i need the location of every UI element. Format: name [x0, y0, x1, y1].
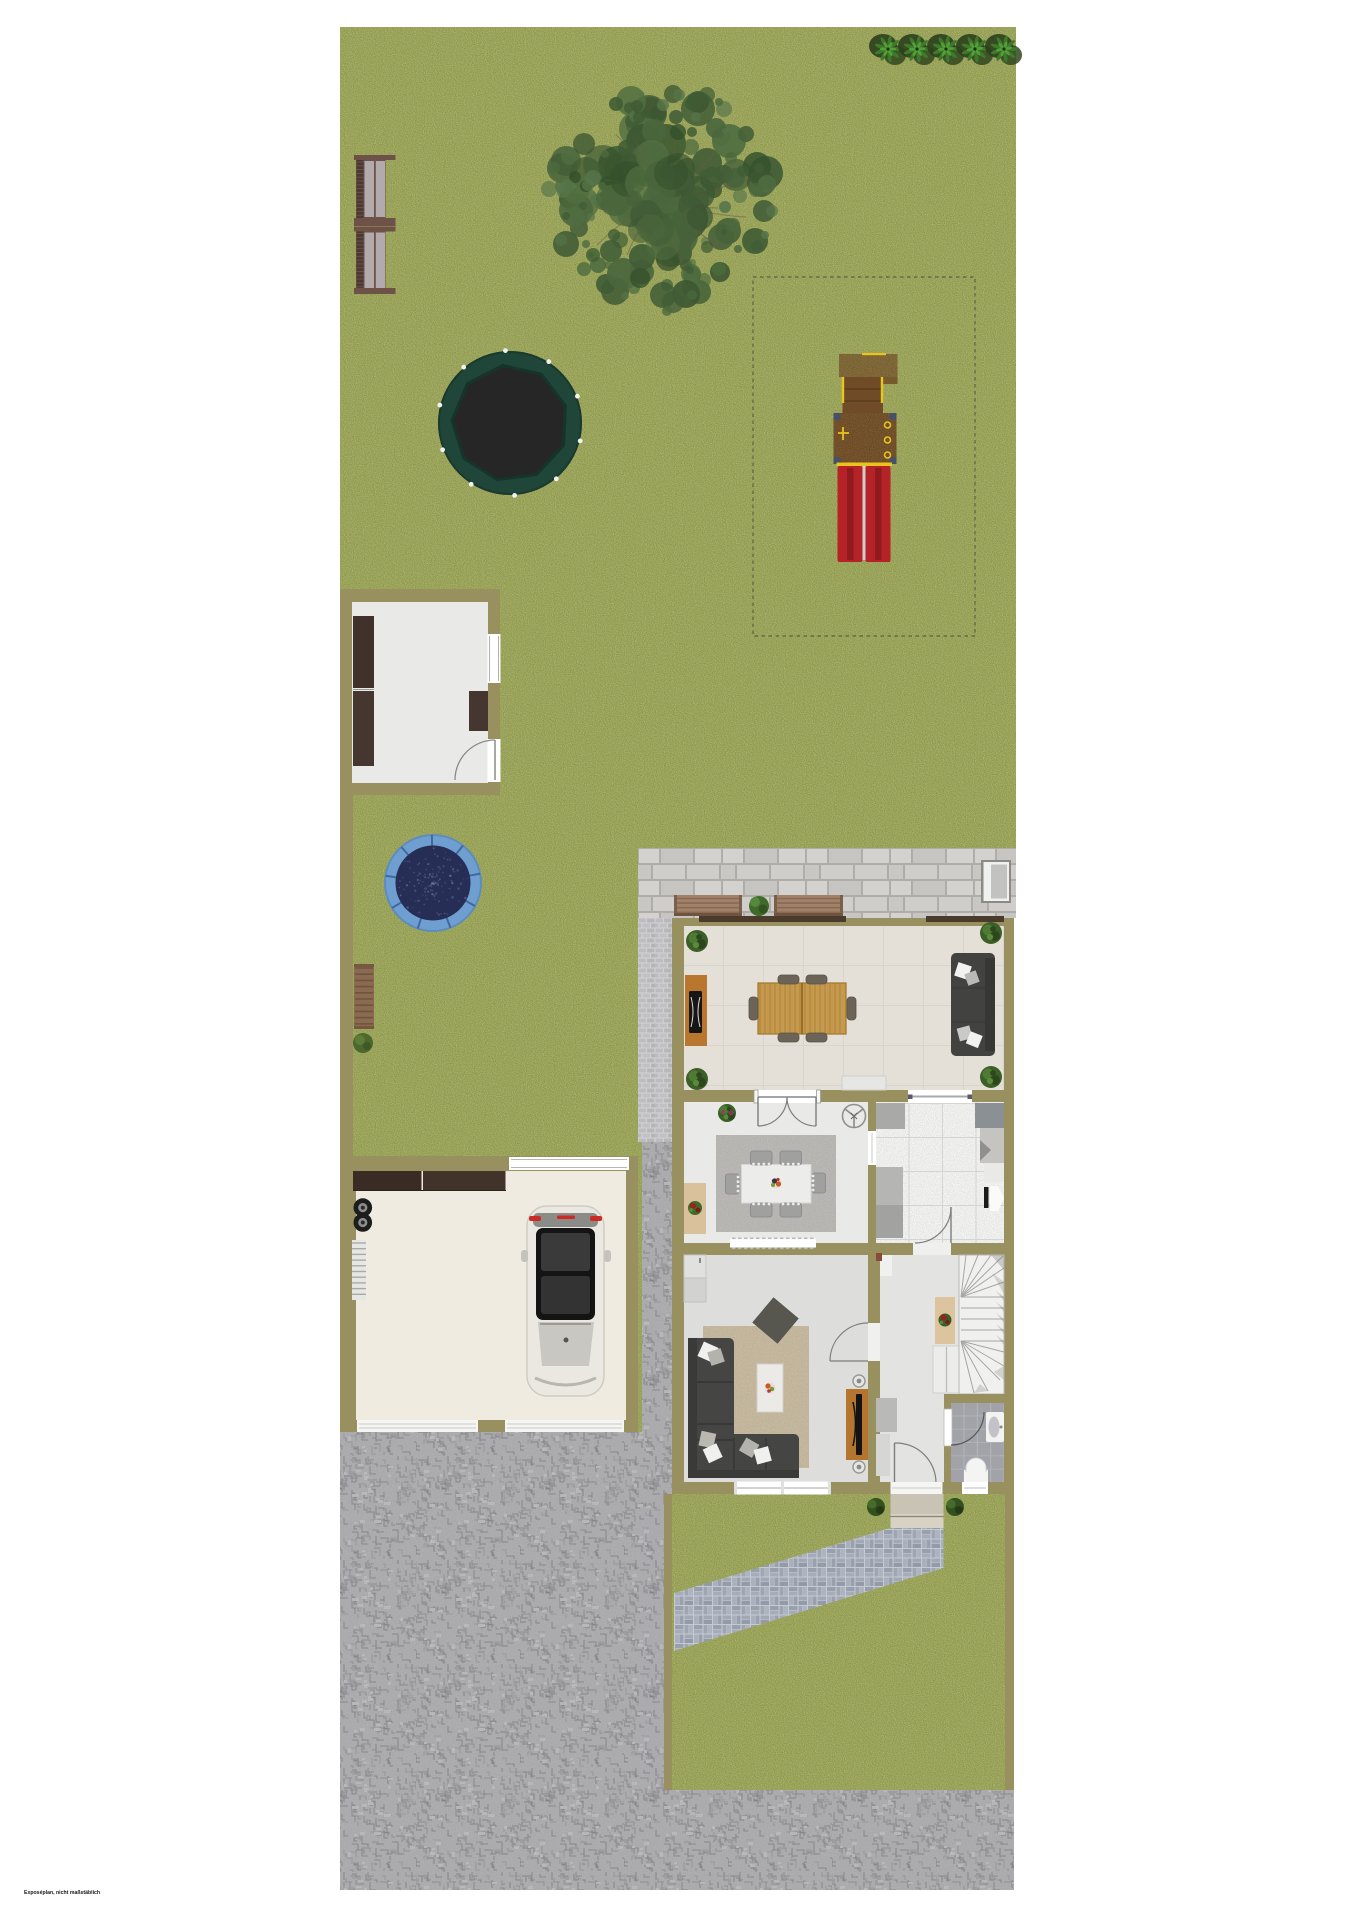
svg-text:Exposéplan, nicht maßstäblich: Exposéplan, nicht maßstäblich — [24, 1890, 100, 1896]
